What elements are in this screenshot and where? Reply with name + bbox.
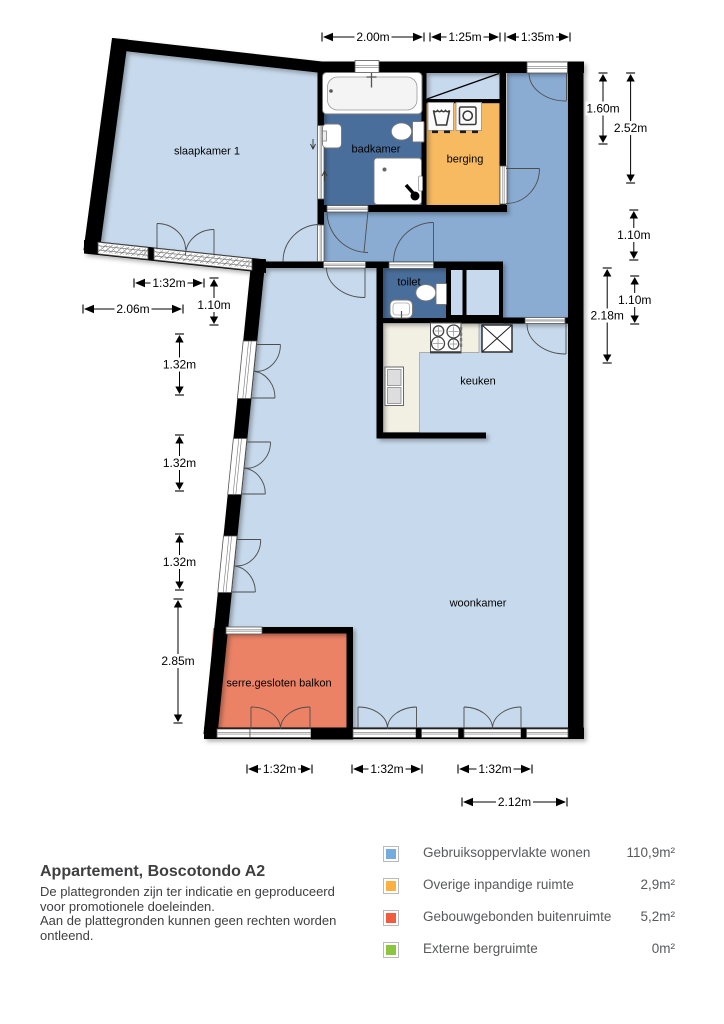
svg-text:1:35m: 1:35m	[521, 30, 554, 44]
svg-text:1.60m: 1.60m	[586, 102, 619, 116]
svg-text:1.32m: 1.32m	[163, 358, 196, 372]
svg-text:2.18m: 2.18m	[591, 309, 624, 323]
svg-text:2.85m: 2.85m	[161, 654, 194, 668]
svg-text:1.32m: 1.32m	[163, 555, 196, 569]
svg-text:keuken: keuken	[460, 376, 495, 388]
svg-text:2.06m: 2.06m	[116, 302, 149, 316]
svg-text:1.10m: 1.10m	[197, 298, 230, 312]
svg-text:1:32m: 1:32m	[370, 762, 403, 776]
svg-text:2.00m: 2.00m	[356, 30, 389, 44]
svg-text:2.12m: 2.12m	[498, 795, 531, 809]
svg-text:badkamer: badkamer	[352, 144, 401, 156]
svg-text:1.10m: 1.10m	[618, 293, 651, 307]
svg-text:1:32m: 1:32m	[152, 276, 185, 290]
svg-text:1.32m: 1.32m	[163, 456, 196, 470]
svg-text:berging: berging	[447, 154, 484, 166]
svg-text:2.52m: 2.52m	[614, 121, 647, 135]
svg-text:slaapkamer 1: slaapkamer 1	[174, 146, 240, 158]
svg-text:1:32m: 1:32m	[263, 762, 296, 776]
svg-text:1:25m: 1:25m	[448, 30, 481, 44]
svg-text:serre.gesloten balkon: serre.gesloten balkon	[226, 678, 331, 690]
svg-text:1:32m: 1:32m	[478, 762, 511, 776]
svg-text:woonkamer: woonkamer	[449, 598, 507, 610]
svg-text:1.10m: 1.10m	[617, 228, 650, 242]
svg-text:toilet: toilet	[397, 277, 420, 289]
